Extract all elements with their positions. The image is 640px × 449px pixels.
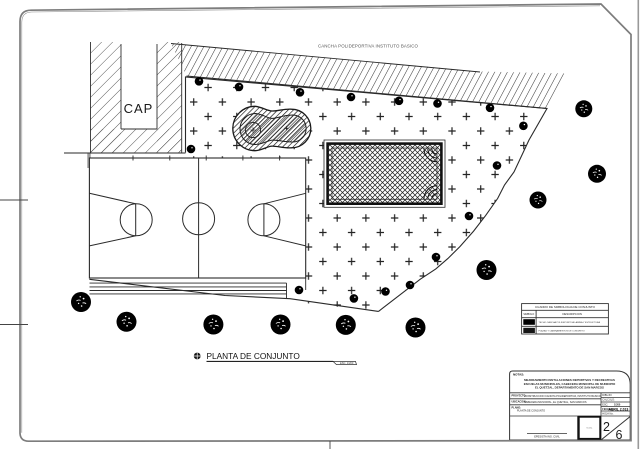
svg-text:NOTAS:: NOTAS:: [513, 372, 524, 376]
svg-text:DIBUJO:: DIBUJO:: [602, 394, 612, 397]
svg-text:TECHO CANCHA POLIDEPORTIVA LAM: TECHO CANCHA POLIDEPORTIVA LAMINA Y ESTR…: [539, 321, 601, 324]
svg-text:PLANTA DE CONJUNTO: PLANTA DE CONJUNTO: [517, 410, 545, 413]
svg-text:EL QUETZAL, DEPARTAMENTO DE SA: EL QUETZAL, DEPARTAMENTO DE SAN MARCOS: [535, 386, 604, 390]
svg-text:CUADRO DE SIMBOLOGIA DE CONJUN: CUADRO DE SIMBOLOGIA DE CONJUNTO: [535, 305, 596, 309]
svg-text:2: 2: [603, 420, 610, 434]
svg-text:DESCRIPCION: DESCRIPCION: [562, 312, 581, 316]
svg-text:EPESISTA ING. CIVIL: EPESISTA ING. CIVIL: [534, 434, 560, 438]
svg-text:ABRIL 2,013: ABRIL 2,013: [609, 408, 629, 412]
svg-text:CONSTRUCCION CANCHA POLIDEPORT: CONSTRUCCION CANCHA POLIDEPORTIVA, INSTI…: [524, 395, 601, 398]
svg-text:Vo.Bo.: Vo.Bo.: [586, 428, 593, 430]
svg-text:CALCULO:: CALCULO:: [602, 399, 615, 402]
svg-text:CAP: CAP: [124, 101, 154, 116]
svg-text:ESC. 1/200: ESC. 1/200: [340, 361, 354, 365]
svg-text:ESC:: ESC:: [602, 403, 608, 406]
svg-text:CABECERA MUNICIPAL, EL QUETZAL: CABECERA MUNICIPAL, EL QUETZAL, SAN MARC…: [524, 401, 587, 404]
svg-text:PLAZAS Y CAMINAMIENTOS DE CONC: PLAZAS Y CAMINAMIENTOS DE CONCRETO: [539, 330, 585, 333]
svg-text:HOJA No.: HOJA No.: [602, 413, 613, 416]
svg-text:CANCHA POLIDEPORTIVA INSTITUTO: CANCHA POLIDEPORTIVA INSTITUTO BASICO: [318, 43, 419, 48]
svg-text:1/200: 1/200: [614, 404, 621, 407]
svg-text:SIMBOLO: SIMBOLO: [523, 313, 534, 316]
svg-text:PLANTA DE CONJUNTO: PLANTA DE CONJUNTO: [207, 351, 301, 361]
